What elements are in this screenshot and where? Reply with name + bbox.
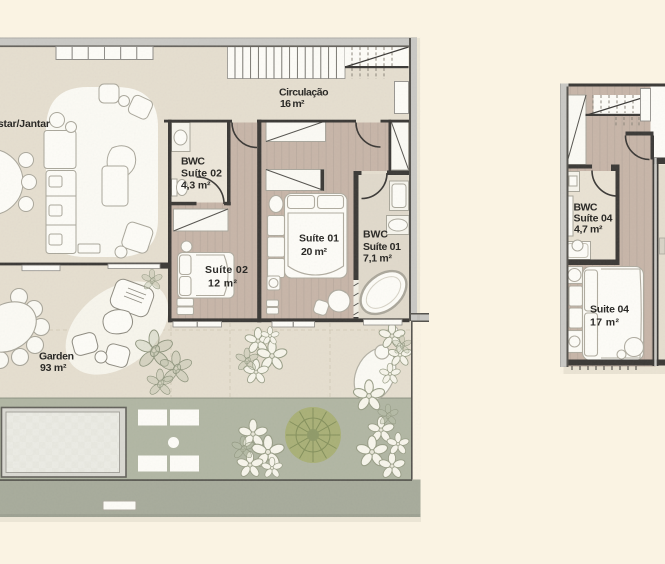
- svg-text:Circulação: Circulação: [279, 87, 329, 99]
- svg-text:7,1 m²: 7,1 m²: [363, 253, 393, 265]
- svg-text:BWC: BWC: [181, 156, 205, 168]
- svg-text:16 m²: 16 m²: [280, 98, 305, 110]
- svg-text:4,7 m²: 4,7 m²: [574, 224, 603, 236]
- svg-text:Suíte 02: Suíte 02: [205, 264, 248, 276]
- svg-text:Estar/Jantar: Estar/Jantar: [0, 118, 50, 130]
- svg-text:Suíte 01: Suíte 01: [299, 233, 339, 245]
- svg-text:Suíte 01: Suíte 01: [363, 241, 401, 253]
- svg-text:Suite 04: Suite 04: [590, 304, 629, 316]
- svg-text:BWC: BWC: [363, 229, 388, 241]
- svg-text:4,3 m²: 4,3 m²: [181, 180, 211, 192]
- svg-text:Suíte 02: Suíte 02: [181, 168, 222, 180]
- svg-text:12 m²: 12 m²: [208, 278, 238, 290]
- svg-text:20 m²: 20 m²: [301, 246, 328, 258]
- svg-text:17 m²: 17 m²: [590, 317, 620, 329]
- svg-text:Garden: Garden: [39, 351, 74, 363]
- svg-text:93 m²: 93 m²: [40, 362, 67, 374]
